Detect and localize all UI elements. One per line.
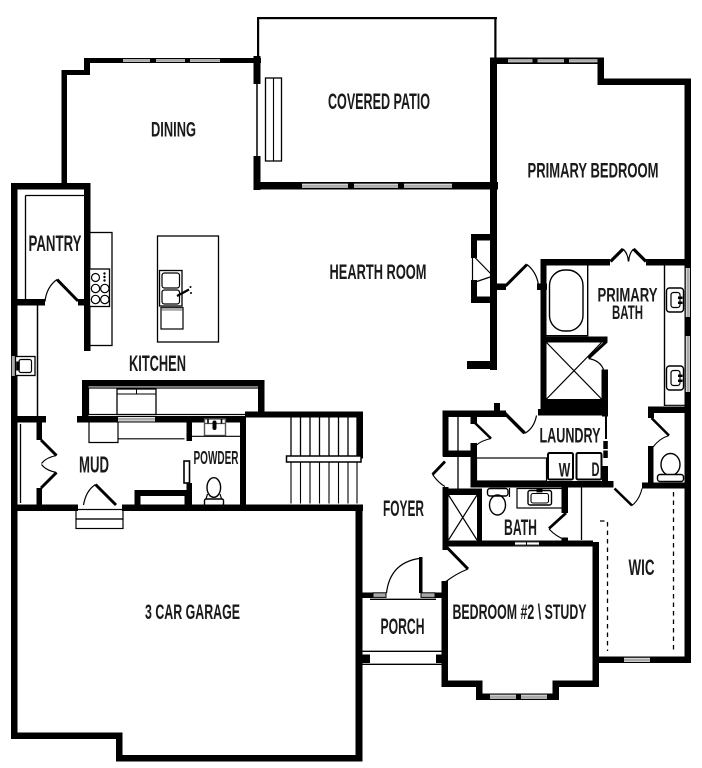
- svg-text:PORCH: PORCH: [381, 614, 425, 639]
- svg-text:3 CAR GARAGE: 3 CAR GARAGE: [145, 600, 240, 624]
- svg-text:KITCHEN: KITCHEN: [129, 351, 186, 376]
- svg-text:POWDER: POWDER: [194, 448, 239, 468]
- svg-text:D: D: [592, 460, 600, 481]
- svg-text:COVERED PATIO: COVERED PATIO: [328, 89, 430, 114]
- svg-text:LAUNDRY: LAUNDRY: [540, 424, 601, 448]
- svg-text:BATH: BATH: [612, 302, 643, 324]
- svg-text:WIC: WIC: [629, 555, 655, 580]
- svg-text:HEARTH ROOM: HEARTH ROOM: [330, 261, 427, 284]
- svg-text:BATH: BATH: [504, 515, 537, 540]
- svg-text:PANTRY: PANTRY: [29, 231, 82, 256]
- svg-text:FOYER: FOYER: [383, 496, 424, 521]
- svg-text:PRIMARY BEDROOM: PRIMARY BEDROOM: [528, 160, 659, 183]
- svg-text:MUD: MUD: [79, 452, 109, 478]
- svg-text:BEDROOM #2 \ STUDY: BEDROOM #2 \ STUDY: [453, 600, 587, 624]
- svg-text:W: W: [559, 461, 571, 482]
- svg-text:DINING: DINING: [151, 119, 196, 142]
